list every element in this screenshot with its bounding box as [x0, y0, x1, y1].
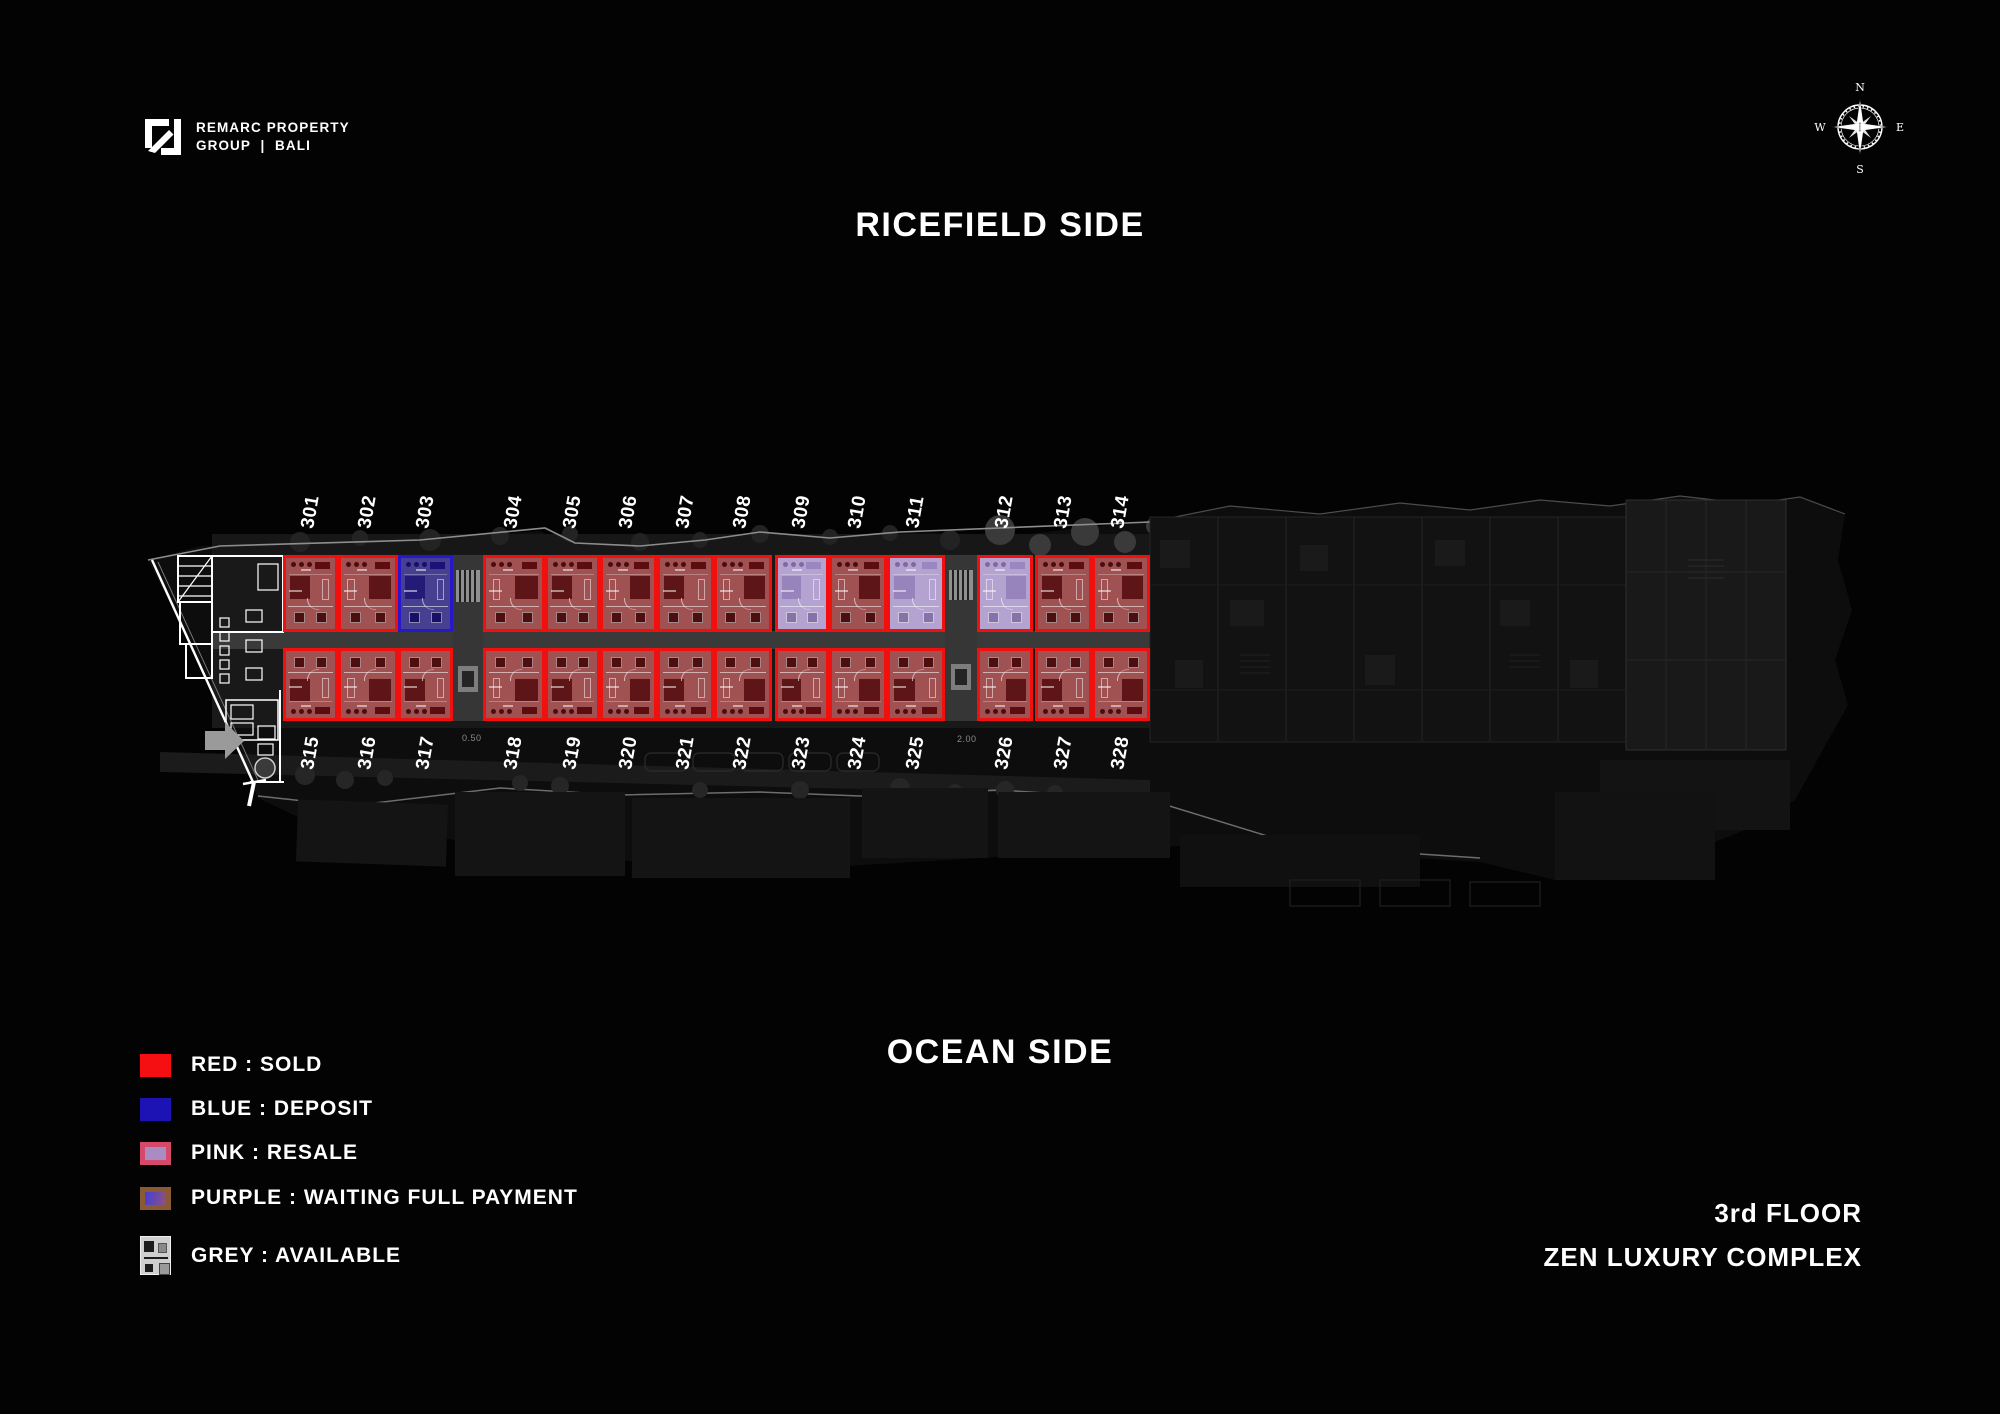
- floorplan-page: REMARC PROPERTYGROUP | BALI N E S W RI: [0, 0, 2000, 1414]
- unit-313[interactable]: [1035, 555, 1092, 632]
- unit-317[interactable]: [398, 648, 453, 721]
- unit-307[interactable]: [657, 555, 714, 632]
- legend-row-deposit: BLUE : DEPOSIT: [140, 1097, 373, 1121]
- unit-315[interactable]: [283, 648, 338, 721]
- legend-swatch-resale: [140, 1142, 171, 1165]
- unit-302[interactable]: [338, 555, 398, 632]
- legend-row-waiting: PURPLE : WAITING FULL PAYMENT: [140, 1186, 578, 1210]
- unit-325[interactable]: [887, 648, 945, 721]
- dimension-label-0: 0.50: [462, 733, 482, 743]
- unit-323[interactable]: [775, 648, 829, 721]
- unit-322[interactable]: [714, 648, 772, 721]
- unit-309[interactable]: [775, 555, 829, 632]
- legend-row-resale: PINK : RESALE: [140, 1141, 358, 1165]
- unit-314[interactable]: [1092, 555, 1150, 632]
- legend-label-resale: PINK : RESALE: [191, 1141, 358, 1165]
- legend-label-deposit: BLUE : DEPOSIT: [191, 1097, 373, 1121]
- legend-row-sold: RED : SOLD: [140, 1053, 322, 1077]
- legend-row-available: GREY : AVAILABLE: [140, 1236, 401, 1275]
- unit-316[interactable]: [338, 648, 398, 721]
- dimension-label-1: 2.00: [957, 734, 977, 744]
- unit-328[interactable]: [1092, 648, 1150, 721]
- stair-gap-2: [945, 555, 977, 721]
- unit-326[interactable]: [977, 648, 1033, 721]
- unit-311[interactable]: [887, 555, 945, 632]
- legend-swatch-deposit: [140, 1098, 171, 1121]
- unit-320[interactable]: [600, 648, 657, 721]
- available-section: [1150, 517, 1662, 742]
- legend-swatch-sold: [140, 1054, 171, 1077]
- legend-swatch-waiting: [140, 1187, 171, 1210]
- unit-327[interactable]: [1035, 648, 1092, 721]
- legend-label-available: GREY : AVAILABLE: [191, 1244, 401, 1268]
- unit-301[interactable]: [283, 555, 338, 632]
- unit-312[interactable]: [977, 555, 1033, 632]
- unit-321[interactable]: [657, 648, 714, 721]
- east-end-block: [1600, 500, 1790, 830]
- unit-324[interactable]: [829, 648, 887, 721]
- unit-303[interactable]: [398, 555, 453, 632]
- unit-305[interactable]: [545, 555, 600, 632]
- unit-304[interactable]: [483, 555, 545, 632]
- unit-306[interactable]: [600, 555, 657, 632]
- legend-swatch-available: [140, 1236, 171, 1275]
- unit-318[interactable]: [483, 648, 545, 721]
- legend-label-waiting: PURPLE : WAITING FULL PAYMENT: [191, 1186, 578, 1210]
- central-corridor: [212, 631, 1150, 649]
- unit-310[interactable]: [829, 555, 887, 632]
- legend-label-sold: RED : SOLD: [191, 1053, 322, 1077]
- stair-gap-1: [453, 555, 483, 721]
- unit-308[interactable]: [714, 555, 772, 632]
- unit-319[interactable]: [545, 648, 600, 721]
